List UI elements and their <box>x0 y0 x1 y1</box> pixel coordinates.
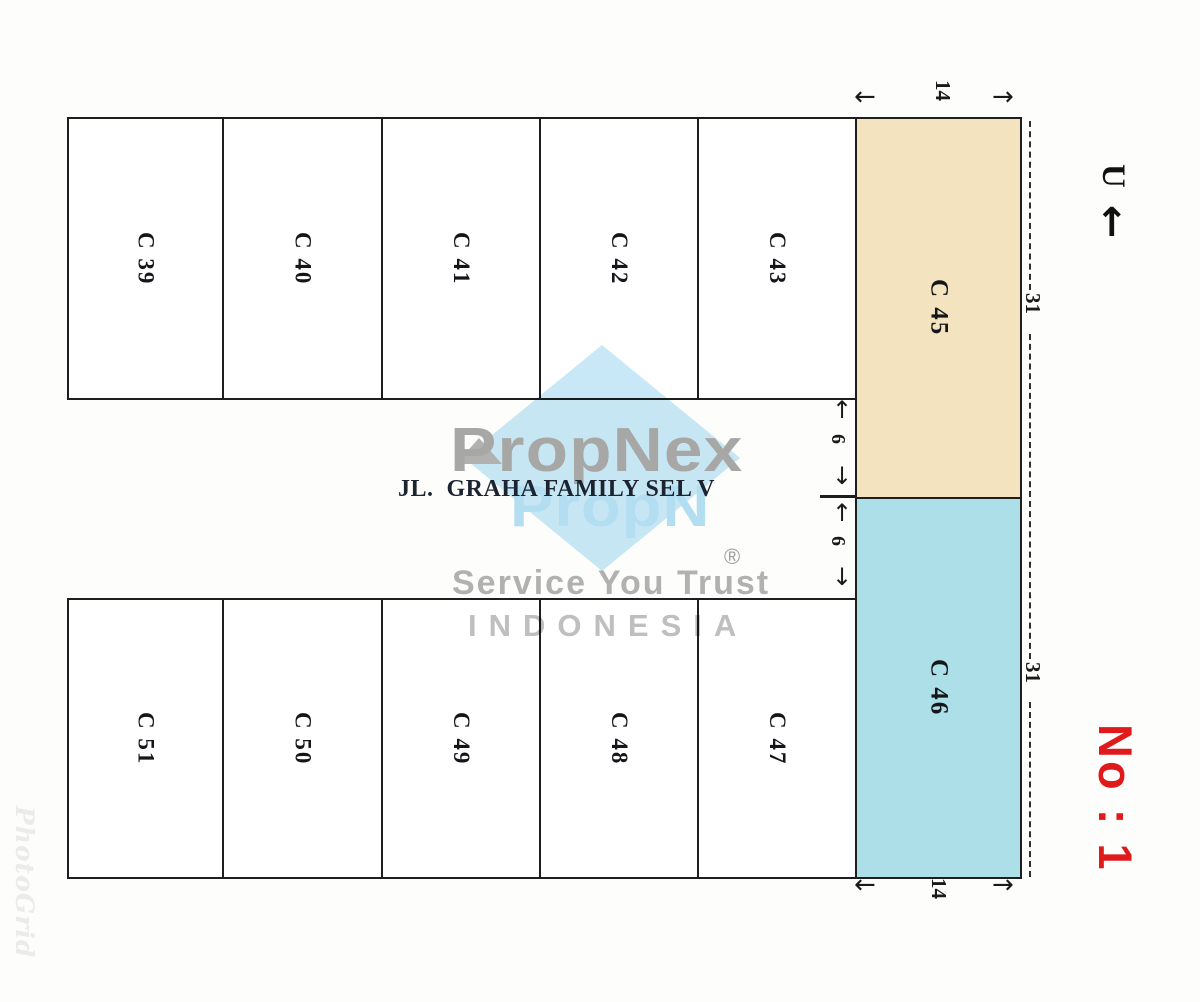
dim-c46-depth-value: 31 <box>1022 662 1043 683</box>
dim-c45-dash-upper <box>1029 121 1031 290</box>
dim-bottom-width-value: 14 <box>928 878 949 899</box>
dim-bottom-arrow-left-icon: ← <box>854 872 876 898</box>
dim-c45-depth-value: 31 <box>1022 293 1043 314</box>
dim-top-width-value: 14 <box>932 80 953 101</box>
dim-road-lower-value: 6 <box>828 536 848 546</box>
dim-c46-dash-upper <box>1029 501 1031 659</box>
dim-top-arrow-left-icon: ← <box>854 84 876 110</box>
north-arrow-icon: ↑ <box>1095 203 1129 243</box>
road-centerline-tick <box>820 495 857 498</box>
dim-road-upper-arrow-down-icon: ↓ <box>832 464 852 488</box>
street-label: JL. GRAHA FAMILY SEL V <box>398 476 715 503</box>
north-label: U <box>1096 164 1129 188</box>
dim-road-upper-arrow-up-icon: ↑ <box>832 398 852 422</box>
dim-c46-dash-lower <box>1029 702 1031 877</box>
sheet-number: No : 1 <box>1092 724 1139 873</box>
dim-road-lower-arrow-down-icon: ↓ <box>832 565 852 589</box>
site-plan-canvas: C 39 C 40 C 41 C 42 C 43 C 45 C 46 C 51 … <box>0 0 1200 1002</box>
propnex-tagline: Service You Trust <box>452 566 770 600</box>
propnex-country: INDONESIA <box>468 610 748 641</box>
propnex-brand-text: PropNex <box>450 420 743 482</box>
dim-bottom-arrow-right-icon: → <box>992 872 1014 898</box>
dim-road-upper-value: 6 <box>828 434 848 444</box>
dim-c45-dash-lower <box>1029 334 1031 497</box>
dim-road-lower-arrow-up-icon: ↑ <box>832 501 852 525</box>
dim-top-arrow-right-icon: → <box>992 84 1014 110</box>
